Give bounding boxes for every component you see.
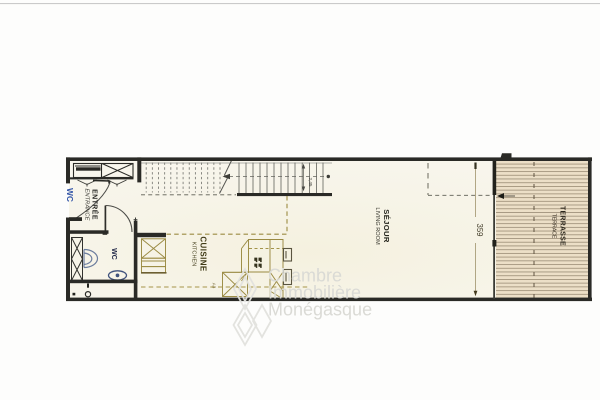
svg-text:ENTRANCE: ENTRANCE <box>84 189 90 221</box>
svg-text:SÉJOUR: SÉJOUR <box>382 209 391 243</box>
svg-text:359: 359 <box>475 223 484 236</box>
svg-text:ENTRÉE: ENTRÉE <box>91 189 100 220</box>
svg-text:CUISINE: CUISINE <box>199 236 208 272</box>
svg-text:2,45: 2,45 <box>308 178 313 187</box>
svg-text:A3: A3 <box>212 283 217 289</box>
svg-text:WC: WC <box>110 248 117 260</box>
svg-text:LIVING ROOM: LIVING ROOM <box>374 207 380 245</box>
svg-text:TERRACE: TERRACE <box>551 214 557 239</box>
svg-text:Monégasque: Monégasque <box>268 300 372 320</box>
svg-text:WC: WC <box>65 188 75 202</box>
svg-text:TERRASSE: TERRASSE <box>559 206 566 246</box>
svg-text:KITCHEN: KITCHEN <box>191 242 197 267</box>
